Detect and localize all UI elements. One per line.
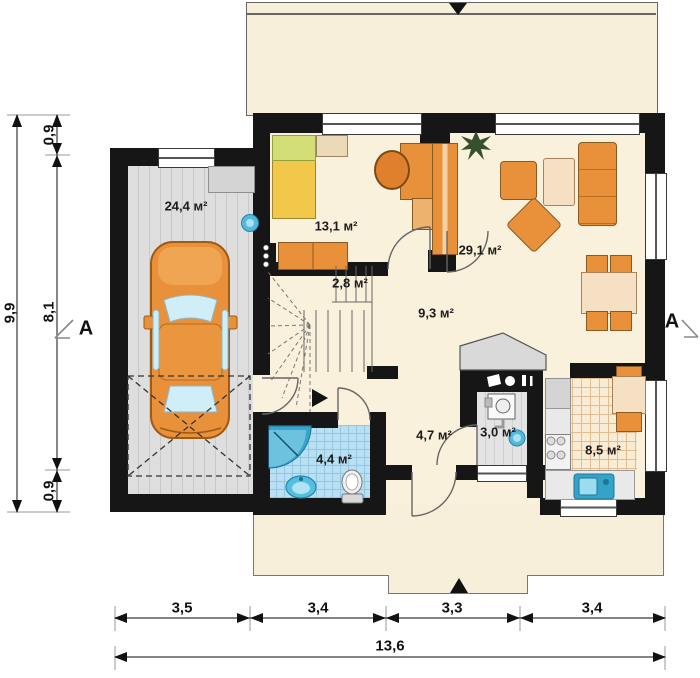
kitchen-window-right <box>645 380 667 472</box>
label-bathroom-area: 4,4 м² <box>316 452 352 467</box>
dim-bottom-3: 3,3 <box>442 600 463 617</box>
coffee-table <box>543 158 575 206</box>
label-bedroom-area: 13,1 м² <box>315 219 358 234</box>
wall-bathroom-top <box>253 412 338 428</box>
dim-bottom-total: 13,6 <box>375 638 404 655</box>
kitchen-window-bottom <box>560 498 617 517</box>
utility-window-bottom <box>477 465 527 482</box>
wall-divider-top-stub <box>420 113 450 143</box>
dining-table <box>581 272 637 314</box>
dim-bottom-2: 3,4 <box>308 600 329 617</box>
bedroom-shelf <box>256 243 276 269</box>
dim-bottom-1: 3,5 <box>172 600 193 617</box>
dining-chair-4 <box>610 311 632 331</box>
section-mark-left: A <box>79 318 93 341</box>
terrace-top-line <box>246 13 656 15</box>
label-living-area: 29,1 м² <box>459 243 502 258</box>
label-corridor-area: 4,7 м² <box>416 428 452 443</box>
dim-left-middle: 8,1 <box>41 302 58 323</box>
garage-floor <box>128 166 253 494</box>
label-utility-area: 3,0 м² <box>480 425 516 440</box>
stove <box>545 434 571 470</box>
desk-chair <box>374 150 410 190</box>
wall-kitchen-left <box>527 380 543 498</box>
floor-plan: 24,4 м² 13,1 м² 2,8 м² 9,3 м² 29,1 м² 4,… <box>0 0 700 678</box>
living-tall-cabinet <box>432 143 458 255</box>
dim-left-bottom: 0,9 <box>41 481 58 502</box>
dining-chair-3 <box>586 311 608 331</box>
label-hall-area: 9,3 м² <box>418 306 454 321</box>
wall-right-2 <box>645 258 665 380</box>
porch-step <box>388 575 528 594</box>
kitchen-counter-left <box>545 408 571 436</box>
wall-bathroom-bottom <box>253 498 386 515</box>
wall-corridor-bottom-left <box>385 465 412 480</box>
dim-left-total: 9,9 <box>2 303 19 324</box>
living-window-top <box>495 113 640 135</box>
kitchen-chair-2 <box>616 412 642 432</box>
wall-garage-bottom <box>110 494 253 512</box>
bed-pillow <box>272 135 316 161</box>
dim-left-top: 0,9 <box>41 125 58 146</box>
wall-utility-left <box>460 392 477 427</box>
garage-shelf <box>208 166 255 193</box>
living-window-right <box>645 173 667 260</box>
wall-right-1 <box>645 113 665 173</box>
nightstand <box>316 135 348 157</box>
bedroom-window <box>322 113 422 135</box>
section-mark-right: A <box>665 311 679 334</box>
wall-corridor-bottom-right <box>456 465 466 480</box>
label-stairs-area: 2,8 м² <box>332 276 368 291</box>
sofa <box>578 142 617 226</box>
bedroom-wardrobe <box>278 242 348 270</box>
dim-bottom-4: 3,4 <box>582 600 603 617</box>
armchair-1 <box>500 161 537 200</box>
wall-corridor-stub <box>367 366 398 379</box>
fridge <box>545 378 571 410</box>
kitchen-counter-bottom <box>545 470 635 500</box>
wall-garage-left <box>110 148 128 512</box>
terrace-top <box>246 2 658 116</box>
label-kitchen-area: 8,5 м² <box>585 443 621 458</box>
label-garage-area: 24,4 м² <box>165 199 208 214</box>
garage-window <box>158 148 215 168</box>
kitchen-table <box>612 376 646 414</box>
